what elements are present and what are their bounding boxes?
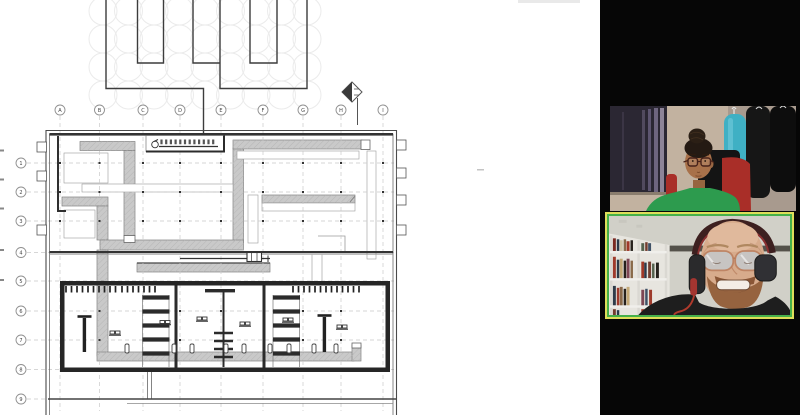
row-label: 7 [19,338,22,344]
screen-share-region: A B C D E F G H I 1 [0,0,600,415]
architectural-floor-plan: A B C D E F G H I 1 [0,0,600,415]
participant-1-video [610,106,796,211]
row-grid-bubbles: 1 2 3 4 5 6 7 8 9 [16,158,26,404]
column-label: B [98,108,102,114]
row-label: 4 [19,250,22,256]
column-label: A [58,108,62,114]
active-speaker-highlight [607,214,792,317]
video-tile-participant-2[interactable] [605,212,794,319]
column-label: C [141,108,145,114]
row-label: 6 [19,309,22,315]
row-label: 5 [19,279,22,285]
column-label: E [219,108,222,114]
smile [717,280,750,290]
video-tile-participant-1[interactable] [610,106,796,211]
column-label: H [339,108,343,114]
window-with-curtains [610,106,667,195]
row-label: 3 [19,219,22,225]
row-label: 1 [19,161,22,167]
toolbar-edge-smudge [518,0,580,3]
headphone-right-cup [755,255,777,281]
row-label: 9 [19,397,22,403]
column-label: F [262,108,265,114]
participant-2-video [609,216,790,315]
video-call-window: A B C D E F G H I 1 [0,0,800,415]
row-label: 2 [19,190,22,196]
column-label: D [178,108,182,114]
participants-panel [600,0,800,415]
row-label: 8 [19,367,22,373]
column-label: G [301,108,305,114]
column-label: I [382,108,383,114]
